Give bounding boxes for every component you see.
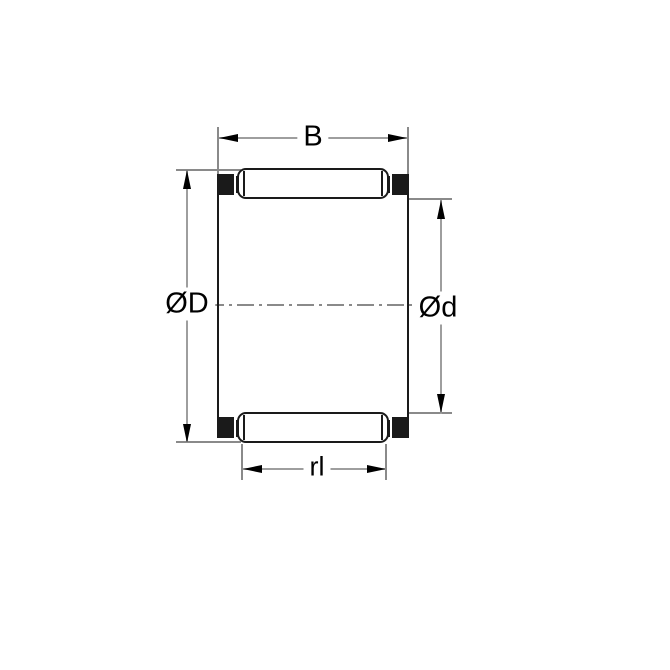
- dim-od-arrow-top: [183, 170, 191, 189]
- top-roller-end-line-right: [381, 171, 383, 196]
- label-outer-diameter: ØD: [159, 288, 215, 321]
- dim-rl-extension-left: [241, 444, 243, 480]
- bearing-cross-section-drawing: B ØD Ød rl: [0, 0, 670, 670]
- label-roller-length: rl: [304, 452, 331, 483]
- bearing-outline-left: [217, 175, 219, 437]
- cage-corner-top-left: [217, 174, 234, 195]
- top-roller: [237, 168, 389, 199]
- cage-corner-bottom-left: [217, 417, 234, 438]
- bottom-roller: [237, 412, 389, 443]
- bottom-roller-end-line-left: [243, 415, 245, 440]
- bottom-roller-end-line-right: [381, 415, 383, 440]
- dim-od-arrow-bottom: [183, 424, 191, 443]
- dim-id-arrow-bottom: [437, 394, 445, 413]
- dim-rl-extension-right: [385, 444, 387, 480]
- dim-b-extension-right: [407, 127, 409, 176]
- dim-b-arrow-left: [219, 134, 238, 142]
- centerline: [207, 304, 416, 306]
- label-inner-diameter: Ød: [413, 292, 464, 325]
- dim-id-arrow-top: [437, 200, 445, 219]
- dim-rl-arrow-left: [243, 465, 262, 473]
- cage-corner-top-right: [392, 174, 409, 195]
- bearing-outline-right: [407, 175, 409, 437]
- top-roller-end-line-left: [243, 171, 245, 196]
- dim-id-extension-top: [408, 198, 452, 200]
- dim-id-extension-bottom: [408, 412, 452, 414]
- label-width-b: B: [297, 121, 328, 154]
- cage-corner-bottom-right: [392, 417, 409, 438]
- dim-rl-arrow-right: [367, 465, 386, 473]
- dim-b-arrow-right: [388, 134, 407, 142]
